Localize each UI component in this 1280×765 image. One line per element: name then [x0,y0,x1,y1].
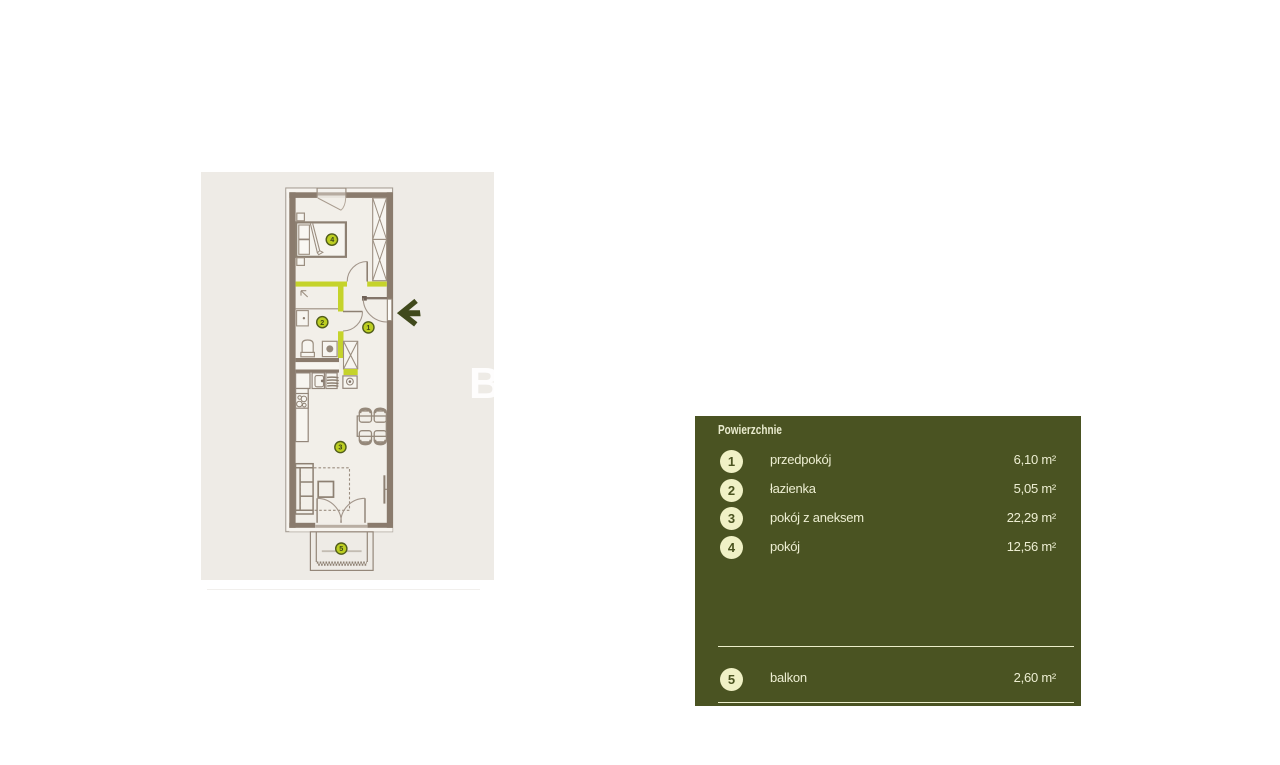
svg-text:3: 3 [338,443,342,452]
svg-text:2: 2 [320,318,324,327]
svg-text:4: 4 [330,235,334,244]
svg-text:1: 1 [366,323,370,332]
svg-text:5: 5 [339,544,343,553]
